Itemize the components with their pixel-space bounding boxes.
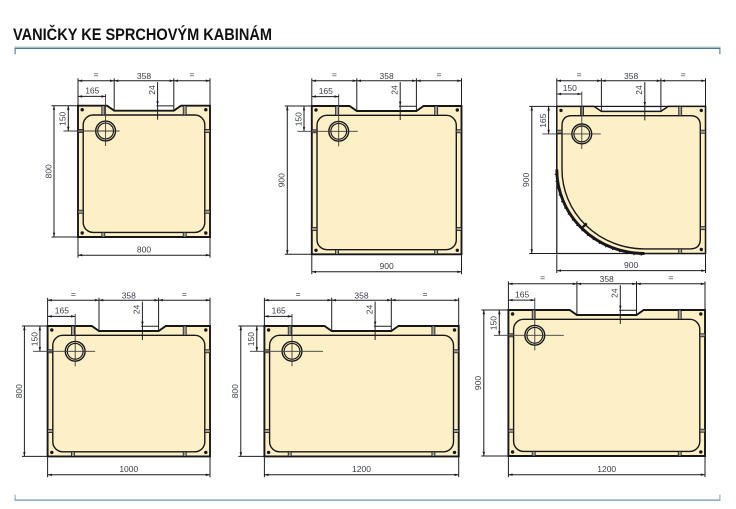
svg-text:=: = bbox=[182, 289, 187, 299]
svg-text:900: 900 bbox=[277, 173, 287, 187]
svg-text:358: 358 bbox=[354, 291, 368, 301]
svg-text:=: = bbox=[94, 70, 99, 80]
svg-text:900: 900 bbox=[521, 173, 531, 187]
svg-text:150: 150 bbox=[293, 112, 303, 126]
svg-text:358: 358 bbox=[122, 291, 136, 301]
svg-text:900: 900 bbox=[624, 260, 638, 270]
svg-text:165: 165 bbox=[272, 306, 286, 316]
svg-text:165: 165 bbox=[85, 86, 99, 96]
svg-text:1000: 1000 bbox=[119, 464, 138, 474]
svg-text:150: 150 bbox=[58, 111, 68, 125]
svg-text:900: 900 bbox=[473, 376, 483, 390]
svg-text:24: 24 bbox=[610, 288, 620, 298]
svg-text:358: 358 bbox=[624, 71, 638, 81]
svg-text:1200: 1200 bbox=[352, 464, 371, 474]
svg-text:800: 800 bbox=[43, 164, 53, 178]
svg-text:=: = bbox=[423, 289, 428, 299]
svg-text:=: = bbox=[540, 273, 545, 283]
svg-text:165: 165 bbox=[319, 86, 333, 96]
svg-text:24: 24 bbox=[132, 305, 142, 315]
svg-text:24: 24 bbox=[364, 305, 374, 315]
svg-text:358: 358 bbox=[380, 71, 394, 81]
svg-text:24: 24 bbox=[634, 85, 644, 95]
svg-text:358: 358 bbox=[137, 71, 151, 81]
svg-text:900: 900 bbox=[380, 261, 394, 271]
svg-text:=: = bbox=[681, 70, 686, 80]
svg-text:=: = bbox=[332, 70, 337, 80]
svg-text:VANIČKY KE SPRCHOVÝM KABINÁM: VANIČKY KE SPRCHOVÝM KABINÁM bbox=[13, 25, 272, 44]
svg-text:=: = bbox=[437, 70, 442, 80]
svg-text:358: 358 bbox=[600, 274, 614, 284]
svg-text:800: 800 bbox=[137, 244, 151, 254]
svg-text:165: 165 bbox=[55, 306, 69, 316]
svg-text:800: 800 bbox=[14, 384, 24, 398]
svg-text:150: 150 bbox=[563, 83, 577, 93]
svg-text:24: 24 bbox=[390, 85, 400, 95]
svg-text:800: 800 bbox=[230, 384, 240, 398]
svg-text:150: 150 bbox=[246, 332, 256, 346]
svg-text:=: = bbox=[577, 70, 582, 80]
svg-text:1200: 1200 bbox=[597, 464, 616, 474]
svg-text:165: 165 bbox=[515, 289, 529, 299]
svg-text:=: = bbox=[296, 289, 301, 299]
svg-text:150: 150 bbox=[489, 316, 499, 330]
svg-text:=: = bbox=[668, 273, 673, 283]
svg-text:=: = bbox=[71, 289, 76, 299]
svg-text:150: 150 bbox=[29, 332, 39, 346]
svg-text:165: 165 bbox=[538, 113, 548, 127]
svg-text:=: = bbox=[189, 70, 194, 80]
svg-text:24: 24 bbox=[147, 85, 157, 95]
